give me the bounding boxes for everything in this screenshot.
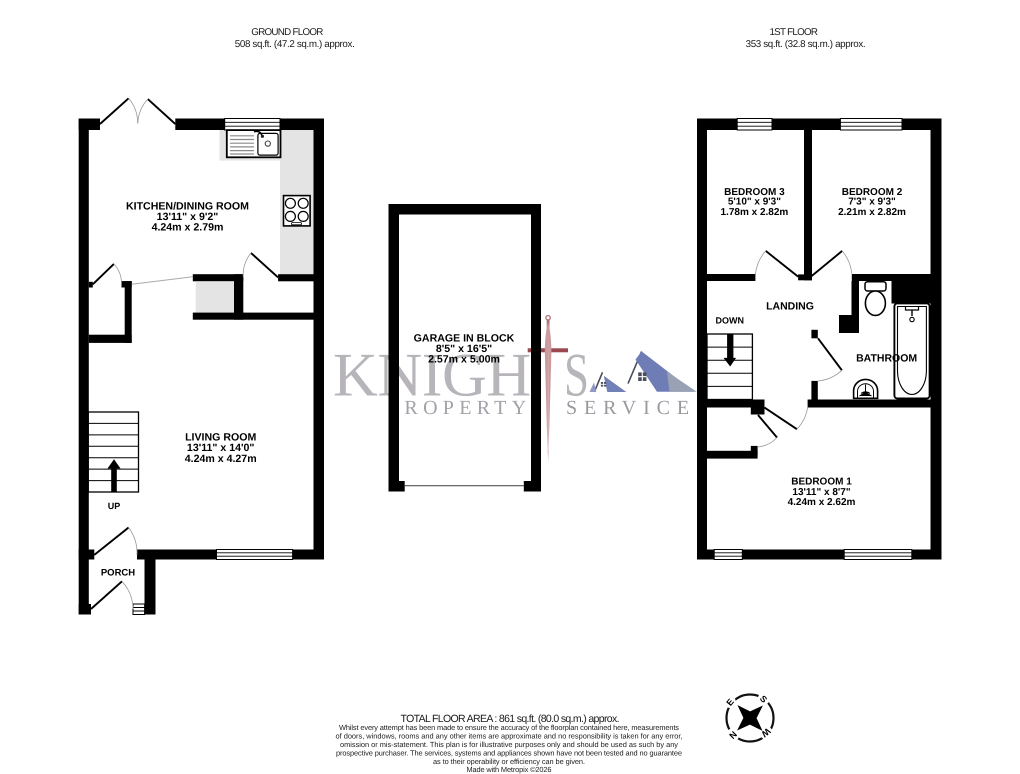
svg-text:BEDROOM 1: BEDROOM 1: [791, 476, 852, 487]
svg-text:4.24m x 2.62m: 4.24m x 2.62m: [788, 497, 856, 508]
svg-text:353 sq.ft. (32.8 sq.m.) approx: 353 sq.ft. (32.8 sq.m.) approx.: [746, 39, 866, 50]
svg-text:4.24m x 2.79m: 4.24m x 2.79m: [152, 222, 224, 234]
svg-text:LANDING: LANDING: [766, 301, 814, 313]
svg-text:1ST FLOOR: 1ST FLOOR: [769, 27, 818, 38]
svg-text:BATHROOM: BATHROOM: [856, 352, 917, 364]
svg-text:2.21m x 2.82m: 2.21m x 2.82m: [838, 207, 906, 218]
svg-text:508 sq.ft. (47.2 sq.m.) approx: 508 sq.ft. (47.2 sq.m.) approx.: [235, 39, 355, 50]
svg-text:PORCH: PORCH: [101, 568, 135, 579]
svg-text:4.24m x 4.27m: 4.24m x 4.27m: [185, 453, 257, 465]
svg-text:UP: UP: [108, 501, 121, 511]
svg-text:SERVICE: SERVICE: [566, 397, 696, 419]
svg-text:GROUND FLOOR: GROUND FLOOR: [251, 27, 323, 38]
svg-text:2.57m x 5.00m: 2.57m x 5.00m: [428, 354, 500, 366]
svg-text:1.78m x 2.82m: 1.78m x 2.82m: [720, 207, 788, 218]
svg-text:Made with Metropix ©2026: Made with Metropix ©2026: [467, 765, 552, 774]
svg-text:DOWN: DOWN: [716, 316, 745, 326]
svg-text:PROPERTY: PROPERTY: [388, 397, 531, 419]
